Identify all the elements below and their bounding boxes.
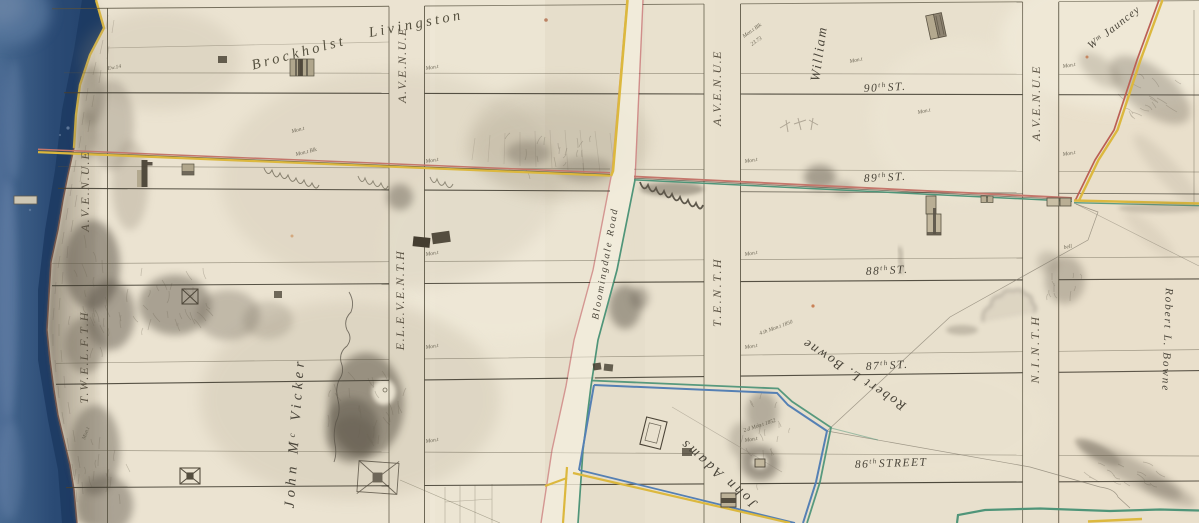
svg-text:A.V.E.N.U.E: A.V.E.N.U.E xyxy=(1029,65,1043,142)
svg-text:T.W.E.L.F.T.H: T.W.E.L.F.T.H xyxy=(77,311,91,404)
svg-text:86thSTREET: 86thSTREET xyxy=(855,455,928,471)
svg-text:A.V.E.N.U.E: A.V.E.N.U.E xyxy=(710,50,724,127)
svg-text:A.V.E.N.U.E: A.V.E.N.U.E xyxy=(78,150,92,232)
svg-text:T.E.N.T.H: T.E.N.T.H xyxy=(710,257,724,327)
svg-text:N.I.N.T.H: N.I.N.T.H xyxy=(1028,315,1042,385)
svg-text:A.V.E.N.U.E: A.V.E.N.U.E xyxy=(395,27,409,104)
svg-text:E.L.E.V.E.N.T.H: E.L.E.V.E.N.T.H xyxy=(393,250,407,351)
